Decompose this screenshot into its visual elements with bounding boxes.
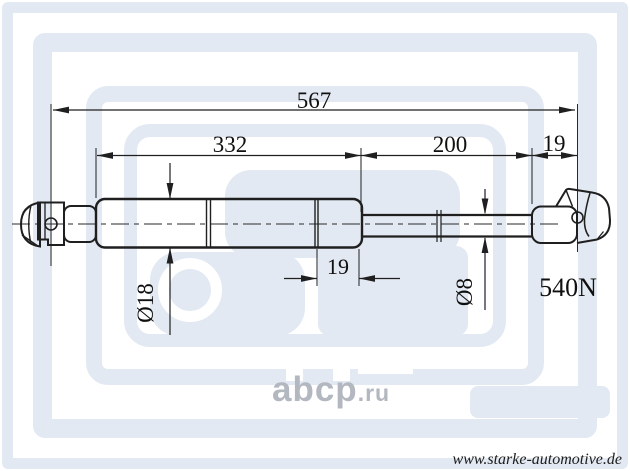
arrowhead-cap-left <box>301 275 317 282</box>
arrowhead-200-left <box>361 152 377 159</box>
dimension-overall-length: 567 <box>53 88 575 113</box>
abcp-watermark-brand: abcp <box>272 370 358 409</box>
right-end-fitting <box>532 189 610 243</box>
dim-cylinder-diameter-label: Ø18 <box>133 283 158 323</box>
dim-end-fitting-label: 19 <box>543 131 566 156</box>
piston-rod <box>362 210 532 242</box>
left-cap-arc <box>29 206 31 245</box>
arrowhead-left <box>53 107 69 114</box>
arrowhead-332-left <box>97 152 113 159</box>
site-url: www.starke-automotive.de <box>453 451 622 469</box>
dim-end-cap-label: 19 <box>327 254 349 279</box>
right-fitting-body <box>532 207 577 244</box>
dim-overall-length-label: 567 <box>297 88 332 113</box>
cylinder-outline <box>96 199 362 248</box>
abcp-watermark: abcp.ru <box>272 372 390 407</box>
arrowhead-332-right <box>345 152 361 159</box>
abcp-watermark-tld: .ru <box>358 380 390 406</box>
arrowhead-right <box>559 107 575 114</box>
arrowhead-dia8-top <box>482 199 489 215</box>
diagram-canvas: 567 332 200 19 19 <box>0 0 630 471</box>
arrowhead-200-right <box>516 152 532 159</box>
arrowhead-dia8-bottom <box>482 237 489 253</box>
dimension-cylinder-diameter: Ø18 <box>133 163 173 335</box>
arrowhead-dia18-bottom <box>167 248 174 264</box>
right-bracket-fold-1 <box>566 190 573 207</box>
dim-rod-diameter-label: Ø8 <box>452 278 477 306</box>
dimension-rod-diameter: Ø8 <box>452 189 488 310</box>
cylinder-body <box>96 199 362 248</box>
dim-rod-length-label: 200 <box>433 132 468 157</box>
dim-cylinder-length-label: 332 <box>213 132 248 157</box>
dimension-end-cap: 19 <box>284 249 400 286</box>
arrowhead-cap-right <box>359 275 375 282</box>
right-bracket-fold-2 <box>584 193 590 237</box>
arrowhead-dia18-top <box>167 183 174 199</box>
force-rating-label: 540N <box>539 273 597 302</box>
